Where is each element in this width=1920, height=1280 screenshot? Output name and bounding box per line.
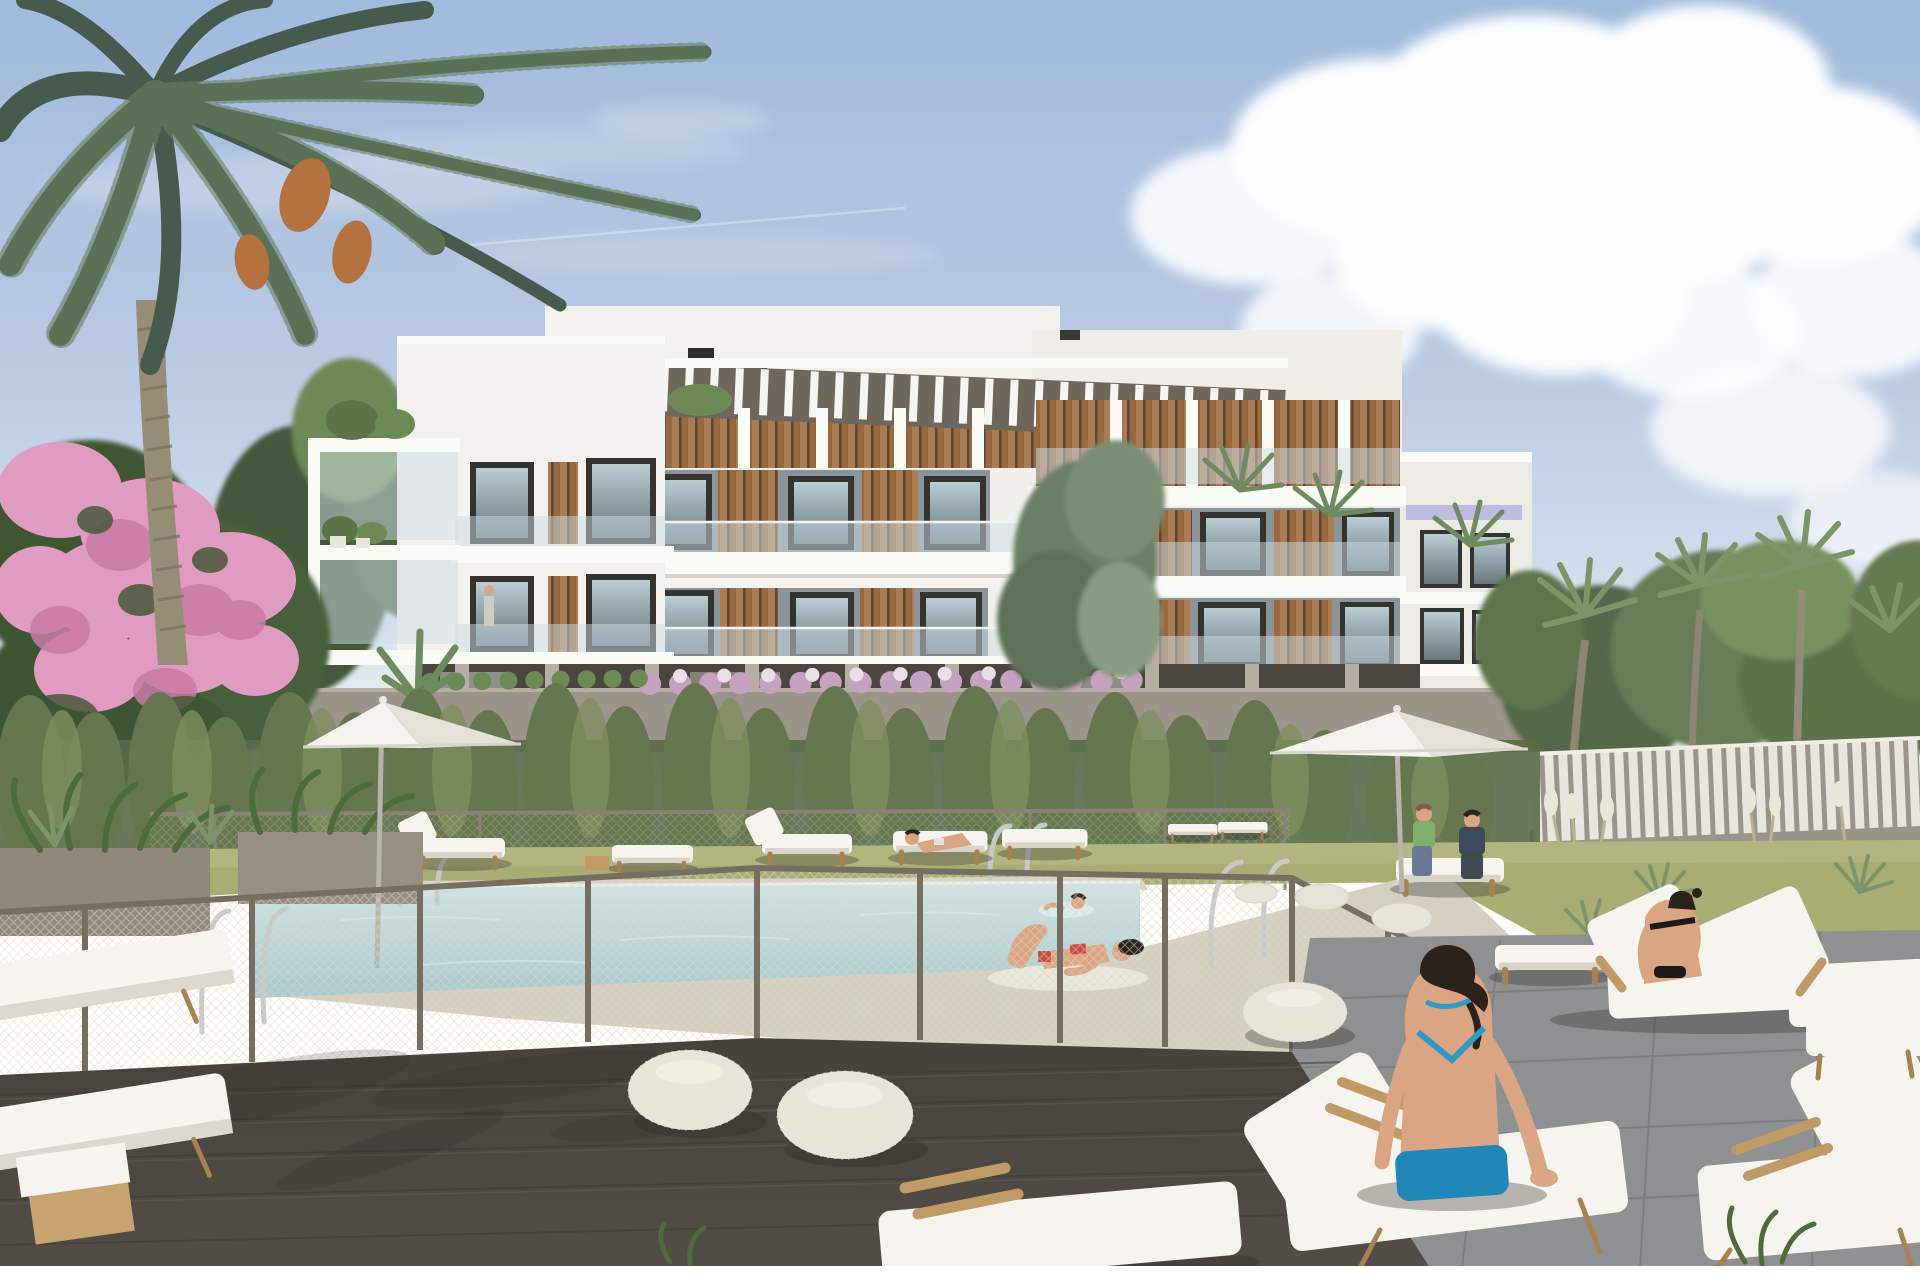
image-bottom-margin	[0, 1266, 1920, 1280]
balcony-person	[484, 596, 494, 626]
tinted-glass-railing	[1406, 505, 1522, 520]
pouf	[1295, 884, 1349, 910]
fence-mesh-right	[757, 868, 1292, 1052]
side-table	[585, 856, 609, 870]
architectural-render	[0, 0, 1920, 1280]
roof-planter-bush	[668, 384, 732, 416]
render-scene	[0, 0, 1920, 1280]
roof-vent	[1060, 330, 1080, 340]
pouf	[1372, 903, 1432, 933]
pouf	[1235, 883, 1277, 903]
